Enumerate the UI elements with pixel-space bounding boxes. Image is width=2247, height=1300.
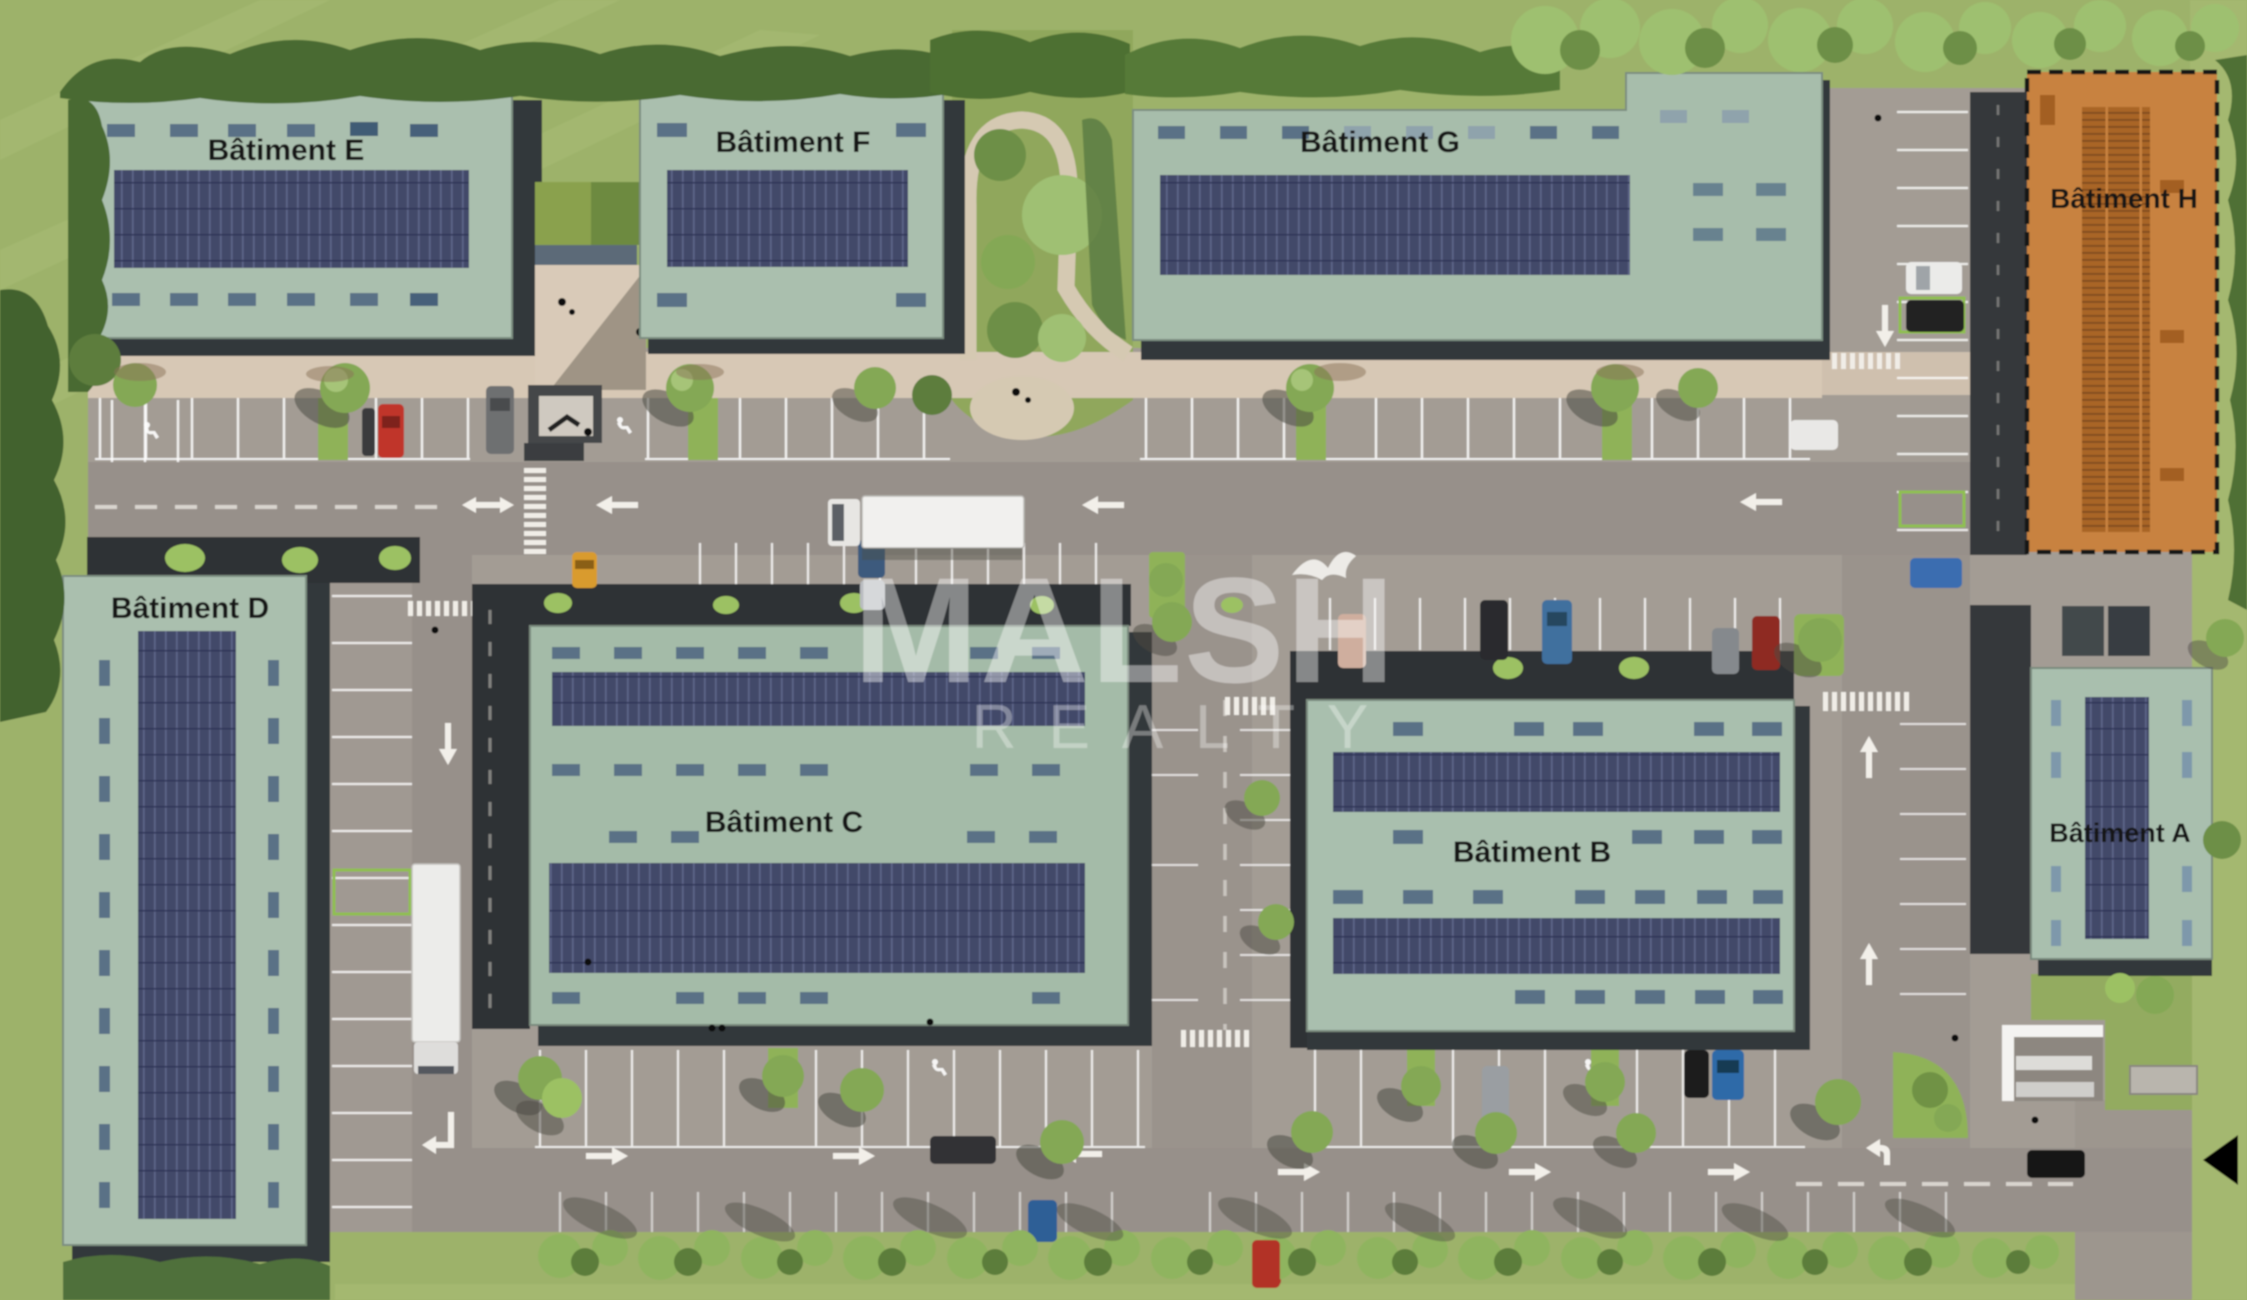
svg-text:Bâtiment F: Bâtiment F — [715, 126, 870, 159]
svg-text:Bâtiment D: Bâtiment D — [111, 592, 269, 625]
svg-text:MALSH: MALSH — [853, 546, 1396, 714]
svg-text:Bâtiment B: Bâtiment B — [1453, 836, 1611, 869]
svg-text:REALTY: REALTY — [972, 693, 1401, 762]
svg-text:Bâtiment C: Bâtiment C — [705, 806, 863, 839]
svg-text:Bâtiment H: Bâtiment H — [2050, 183, 2198, 214]
svg-text:Bâtiment A: Bâtiment A — [2049, 818, 2191, 848]
svg-text:Bâtiment G: Bâtiment G — [1300, 126, 1460, 159]
svg-text:Bâtiment E: Bâtiment E — [208, 134, 365, 167]
